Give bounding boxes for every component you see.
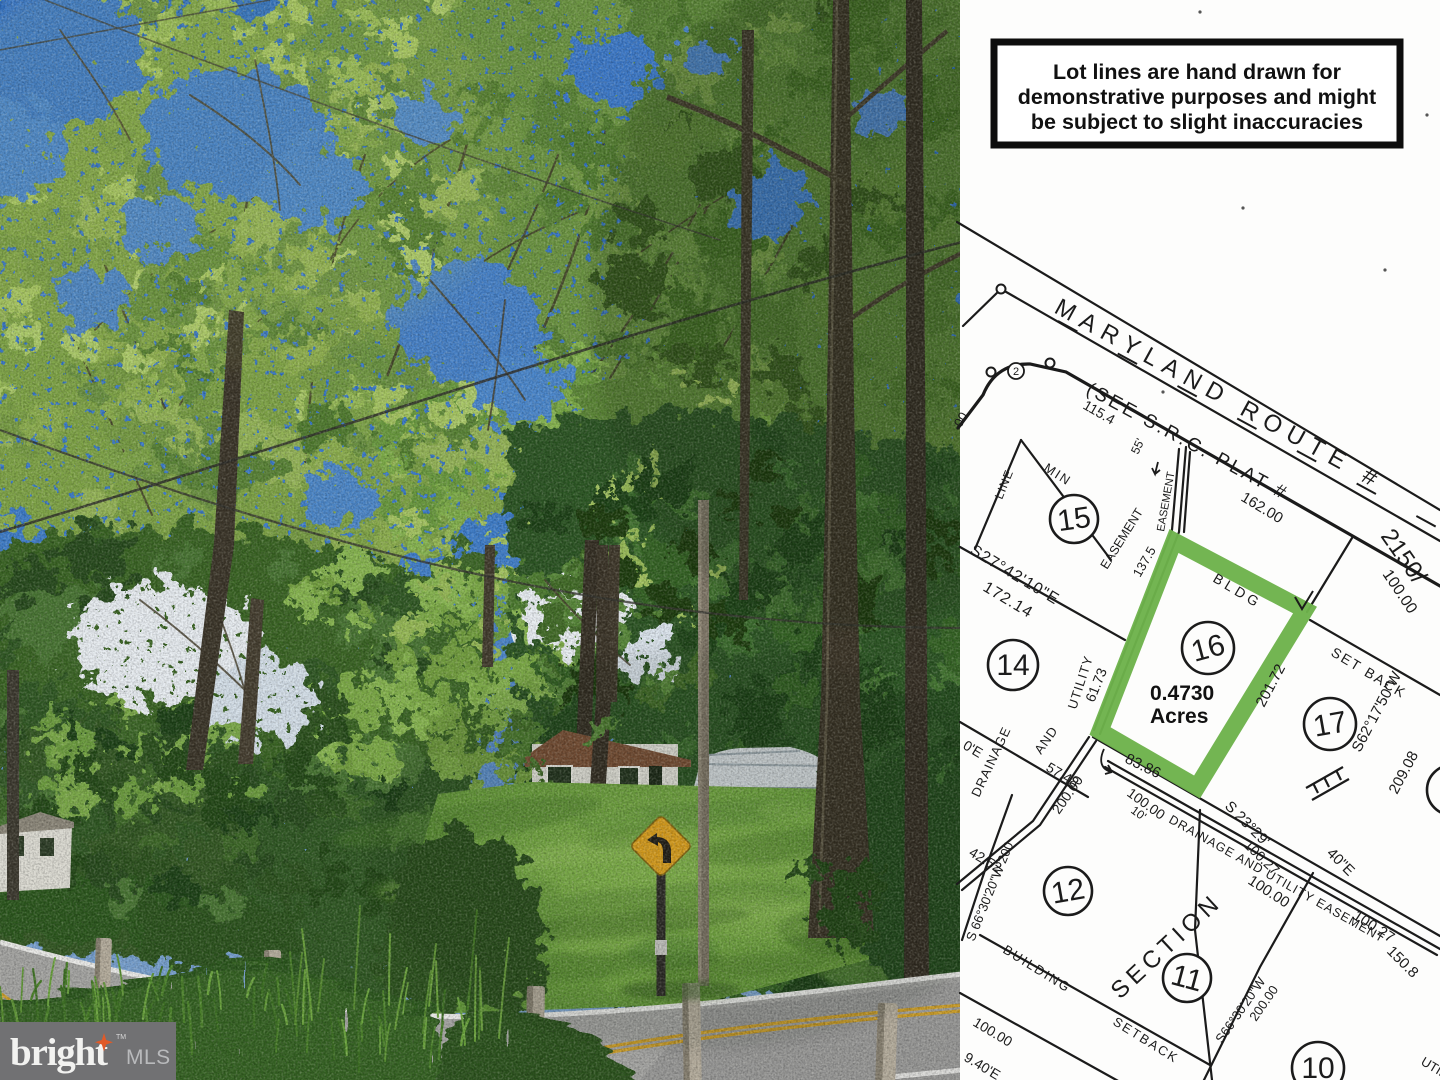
svg-text:2: 2	[1013, 366, 1019, 378]
svg-text:10: 10	[1301, 1052, 1334, 1080]
svg-text:MLS: MLS	[126, 1046, 171, 1069]
svg-text:Acres: Acres	[1150, 705, 1208, 728]
svg-text:demonstrative purposes and mig: demonstrative purposes and might	[1018, 85, 1376, 109]
svg-text:12: 12	[1049, 872, 1088, 910]
svg-text:be subject to slight inaccurac: be subject to slight inaccuracies	[1031, 110, 1363, 134]
svg-text:0.4730: 0.4730	[1150, 682, 1214, 705]
svg-text:17: 17	[1311, 705, 1350, 743]
svg-text:15: 15	[1055, 501, 1093, 538]
svg-text:14: 14	[996, 649, 1029, 682]
svg-text:Lot lines are hand drawn for: Lot lines are hand drawn for	[1053, 60, 1342, 84]
svg-text:TM: TM	[116, 1034, 126, 1041]
svg-text:bright: bright	[10, 1031, 108, 1074]
